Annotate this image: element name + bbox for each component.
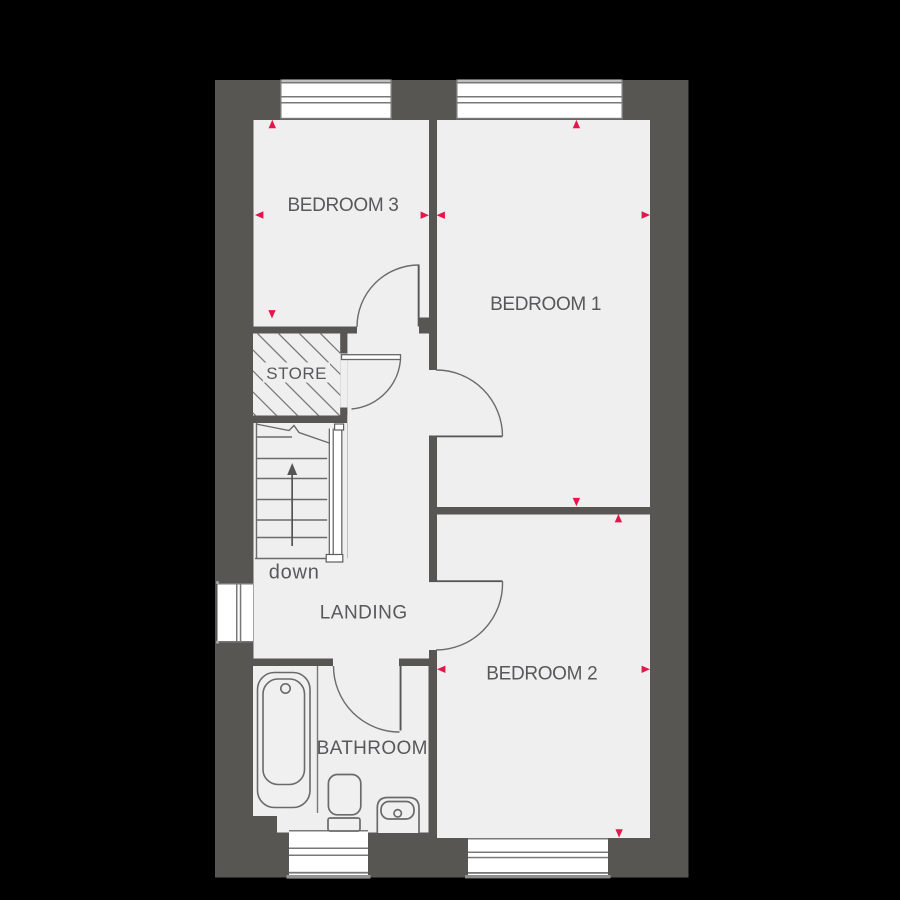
- svg-text:BEDROOM 1: BEDROOM 1: [490, 294, 601, 315]
- svg-text:BEDROOM 3: BEDROOM 3: [287, 195, 398, 216]
- svg-text:LANDING: LANDING: [320, 602, 408, 623]
- svg-text:BATHROOM: BATHROOM: [317, 738, 428, 759]
- svg-text:STORE: STORE: [266, 364, 327, 383]
- svg-text:down: down: [269, 562, 320, 584]
- svg-text:BEDROOM 2: BEDROOM 2: [486, 663, 597, 684]
